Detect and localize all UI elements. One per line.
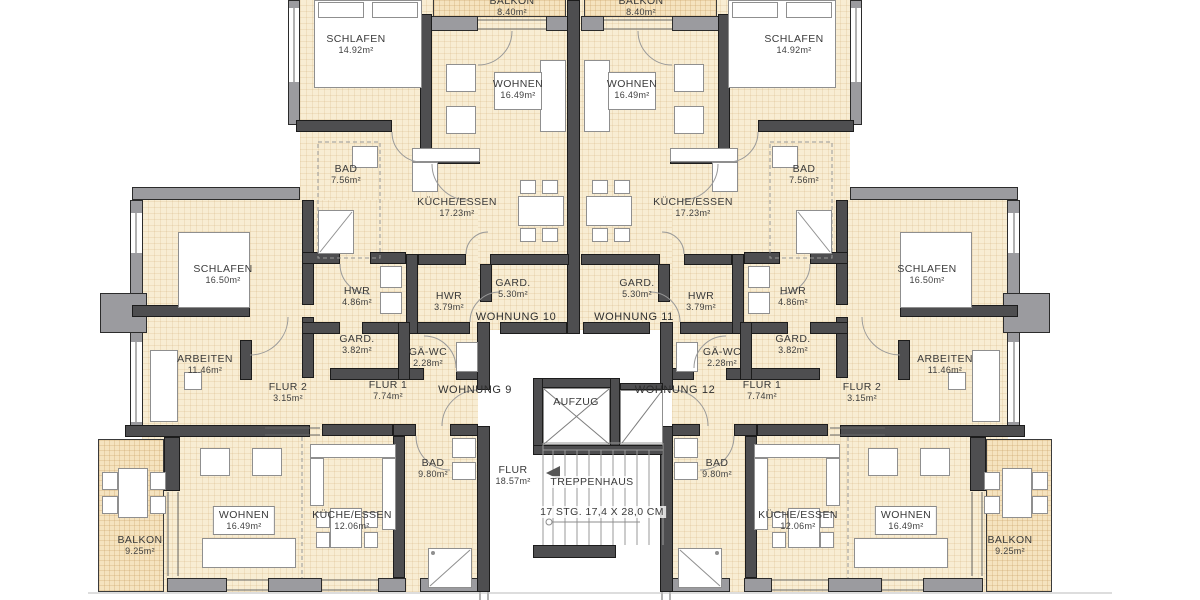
- room-label-schlafen-10: SCHLAFEN14.92m²: [326, 33, 385, 56]
- room-name: FLUR: [495, 464, 530, 476]
- stairwell-label: TREPPENHAUS: [548, 476, 635, 488]
- stairs-note: 17 STG. 17,4 X 28,0 CM: [538, 506, 666, 518]
- unit-label-wohnung-12: WOHNUNG 12: [635, 384, 716, 396]
- room-area: 3.79m²: [686, 302, 716, 312]
- room-label-gaewc-12: GÄ-WC2.28m²: [703, 346, 741, 369]
- room-label-bad-12: BAD9.80m²: [702, 457, 732, 480]
- room-name: BALKON: [118, 534, 163, 546]
- room-label-bad-10: BAD7.56m²: [331, 163, 361, 186]
- room-name: WOHNEN: [607, 78, 657, 90]
- room-label-kueche-12: KÜCHE/ESSEN12.06m²: [758, 509, 838, 532]
- shaft-diagonal: [622, 392, 661, 443]
- room-name: GARD.: [619, 277, 654, 289]
- room-label-gard-9: GARD.3.82m²: [339, 333, 374, 356]
- room-label-wohnen-10: WOHNEN16.49m²: [493, 78, 543, 101]
- room-area: 16.49m²: [881, 521, 931, 531]
- room-area: 14.92m²: [326, 45, 385, 55]
- floor-plan-canvas: BALKON8.40m²SCHLAFEN14.92m²WOHNEN16.49m²…: [0, 0, 1200, 600]
- stair-walk-line: [546, 519, 640, 525]
- room-label-kueche-11: KÜCHE/ESSEN17.23m²: [653, 196, 733, 219]
- room-area: 7.74m²: [369, 391, 408, 401]
- room-name: FLUR 1: [369, 379, 408, 391]
- room-name: WOHNEN: [493, 78, 543, 90]
- room-label-balkon-10: BALKON8.40m²: [490, 0, 535, 18]
- room-label-gaewc-9: GÄ-WC2.28m²: [409, 346, 447, 369]
- room-label-kueche-10: KÜCHE/ESSEN17.23m²: [417, 196, 497, 219]
- room-label-wohnen-11: WOHNEN16.49m²: [607, 78, 657, 101]
- room-label-wohnen-9: WOHNEN16.49m²: [213, 506, 275, 535]
- room-label-gard-12: GARD.3.82m²: [775, 333, 810, 356]
- room-area: 2.28m²: [409, 358, 447, 368]
- room-area: 3.15m²: [843, 393, 882, 403]
- room-label-schlafen-11: SCHLAFEN14.92m²: [764, 33, 823, 56]
- room-name: GÄ-WC: [703, 346, 741, 358]
- room-name: BAD: [789, 163, 819, 175]
- room-name: BALKON: [619, 0, 664, 7]
- room-area: 7.56m²: [789, 175, 819, 185]
- room-area: 8.40m²: [490, 7, 535, 17]
- unit-label-wohnung-9: WOHNUNG 9: [438, 384, 512, 396]
- room-area: 16.49m²: [493, 90, 543, 100]
- room-name: SCHLAFEN: [326, 33, 385, 45]
- room-label-bad-11: BAD7.56m²: [789, 163, 819, 186]
- room-area: 16.50m²: [193, 275, 252, 285]
- room-name: BALKON: [490, 0, 535, 7]
- room-label-hwr-11: HWR3.79m²: [686, 290, 716, 313]
- room-name: GÄ-WC: [409, 346, 447, 358]
- room-area: 9.25m²: [988, 546, 1033, 556]
- room-area: 8.40m²: [619, 7, 664, 17]
- room-name: HWR: [342, 285, 372, 297]
- room-label-flur2-9: FLUR 23.15m²: [269, 381, 308, 404]
- room-label-flur-core: FLUR18.57m²: [495, 464, 530, 487]
- room-name: WOHNEN: [219, 509, 269, 521]
- room-name: FLUR 2: [269, 381, 308, 393]
- unit-label-wohnung-10: WOHNUNG 10: [476, 311, 557, 323]
- room-area: 4.86m²: [778, 297, 808, 307]
- room-label-hwr-12: HWR4.86m²: [778, 285, 808, 308]
- room-name: HWR: [778, 285, 808, 297]
- room-area: 9.25m²: [118, 546, 163, 556]
- room-area: 3.82m²: [339, 345, 374, 355]
- room-area: 16.49m²: [219, 521, 269, 531]
- room-name: FLUR 1: [743, 379, 782, 391]
- room-area: 18.57m²: [495, 476, 530, 486]
- room-label-flur2-12: FLUR 23.15m²: [843, 381, 882, 404]
- unit-label-wohnung-11: WOHNUNG 11: [594, 311, 674, 323]
- elevator-label: AUFZUG: [553, 396, 599, 408]
- room-label-hwr-9: HWR4.86m²: [342, 285, 372, 308]
- room-area: 7.56m²: [331, 175, 361, 185]
- room-name: GARD.: [339, 333, 374, 345]
- room-label-balkon-9: BALKON9.25m²: [118, 534, 163, 557]
- room-name: FLUR 2: [843, 381, 882, 393]
- room-name: GARD.: [775, 333, 810, 345]
- room-label-arbeiten-12: ARBEITEN11.46m²: [917, 353, 973, 376]
- room-label-balkon-12: BALKON9.25m²: [988, 534, 1033, 557]
- room-name: HWR: [686, 290, 716, 302]
- room-area: 5.30m²: [619, 289, 654, 299]
- room-area: 9.80m²: [418, 469, 448, 479]
- room-name: SCHLAFEN: [193, 263, 252, 275]
- room-name: KÜCHE/ESSEN: [417, 196, 497, 208]
- room-area: 5.30m²: [495, 289, 530, 299]
- room-area: 16.50m²: [897, 275, 956, 285]
- room-name: GARD.: [495, 277, 530, 289]
- room-name: ARBEITEN: [917, 353, 973, 365]
- room-name: BAD: [418, 457, 448, 469]
- room-label-bad-9: BAD9.80m²: [418, 457, 448, 480]
- room-area: 2.28m²: [703, 358, 741, 368]
- room-name: SCHLAFEN: [764, 33, 823, 45]
- room-area: 17.23m²: [653, 208, 733, 218]
- room-label-flur1-12: FLUR 17.74m²: [743, 379, 782, 402]
- room-label-gard-10: GARD.5.30m²: [495, 277, 530, 300]
- room-label-arbeiten-9: ARBEITEN11.46m²: [177, 353, 233, 376]
- room-area: 7.74m²: [743, 391, 782, 401]
- room-name: BAD: [702, 457, 732, 469]
- room-name: BALKON: [988, 534, 1033, 546]
- room-name: HWR: [434, 290, 464, 302]
- room-label-gard-11: GARD.5.30m²: [619, 277, 654, 300]
- room-label-flur1-9: FLUR 17.74m²: [369, 379, 408, 402]
- room-area: 11.46m²: [917, 365, 973, 375]
- room-label-schlafen-9: SCHLAFEN16.50m²: [193, 263, 252, 286]
- room-area: 12.06m²: [758, 521, 838, 531]
- room-name: WOHNEN: [881, 509, 931, 521]
- room-label-kueche-9: KÜCHE/ESSEN12.06m²: [312, 509, 392, 532]
- room-area: 14.92m²: [764, 45, 823, 55]
- room-area: 11.46m²: [177, 365, 233, 375]
- room-area: 3.79m²: [434, 302, 464, 312]
- room-label-hwr-10: HWR3.79m²: [434, 290, 464, 313]
- room-area: 12.06m²: [312, 521, 392, 531]
- room-name: BAD: [331, 163, 361, 175]
- room-area: 17.23m²: [417, 208, 497, 218]
- room-area: 9.80m²: [702, 469, 732, 479]
- room-name: ARBEITEN: [177, 353, 233, 365]
- room-label-balkon-11: BALKON8.40m²: [619, 0, 664, 18]
- room-name: KÜCHE/ESSEN: [312, 509, 392, 521]
- room-name: SCHLAFEN: [897, 263, 956, 275]
- room-area: 3.15m²: [269, 393, 308, 403]
- stairs: [543, 443, 663, 545]
- room-label-schlafen-12: SCHLAFEN16.50m²: [897, 263, 956, 286]
- room-label-wohnen-12: WOHNEN16.49m²: [875, 506, 937, 535]
- room-area: 3.82m²: [775, 345, 810, 355]
- room-area: 16.49m²: [607, 90, 657, 100]
- room-area: 4.86m²: [342, 297, 372, 307]
- room-name: KÜCHE/ESSEN: [758, 509, 838, 521]
- room-name: KÜCHE/ESSEN: [653, 196, 733, 208]
